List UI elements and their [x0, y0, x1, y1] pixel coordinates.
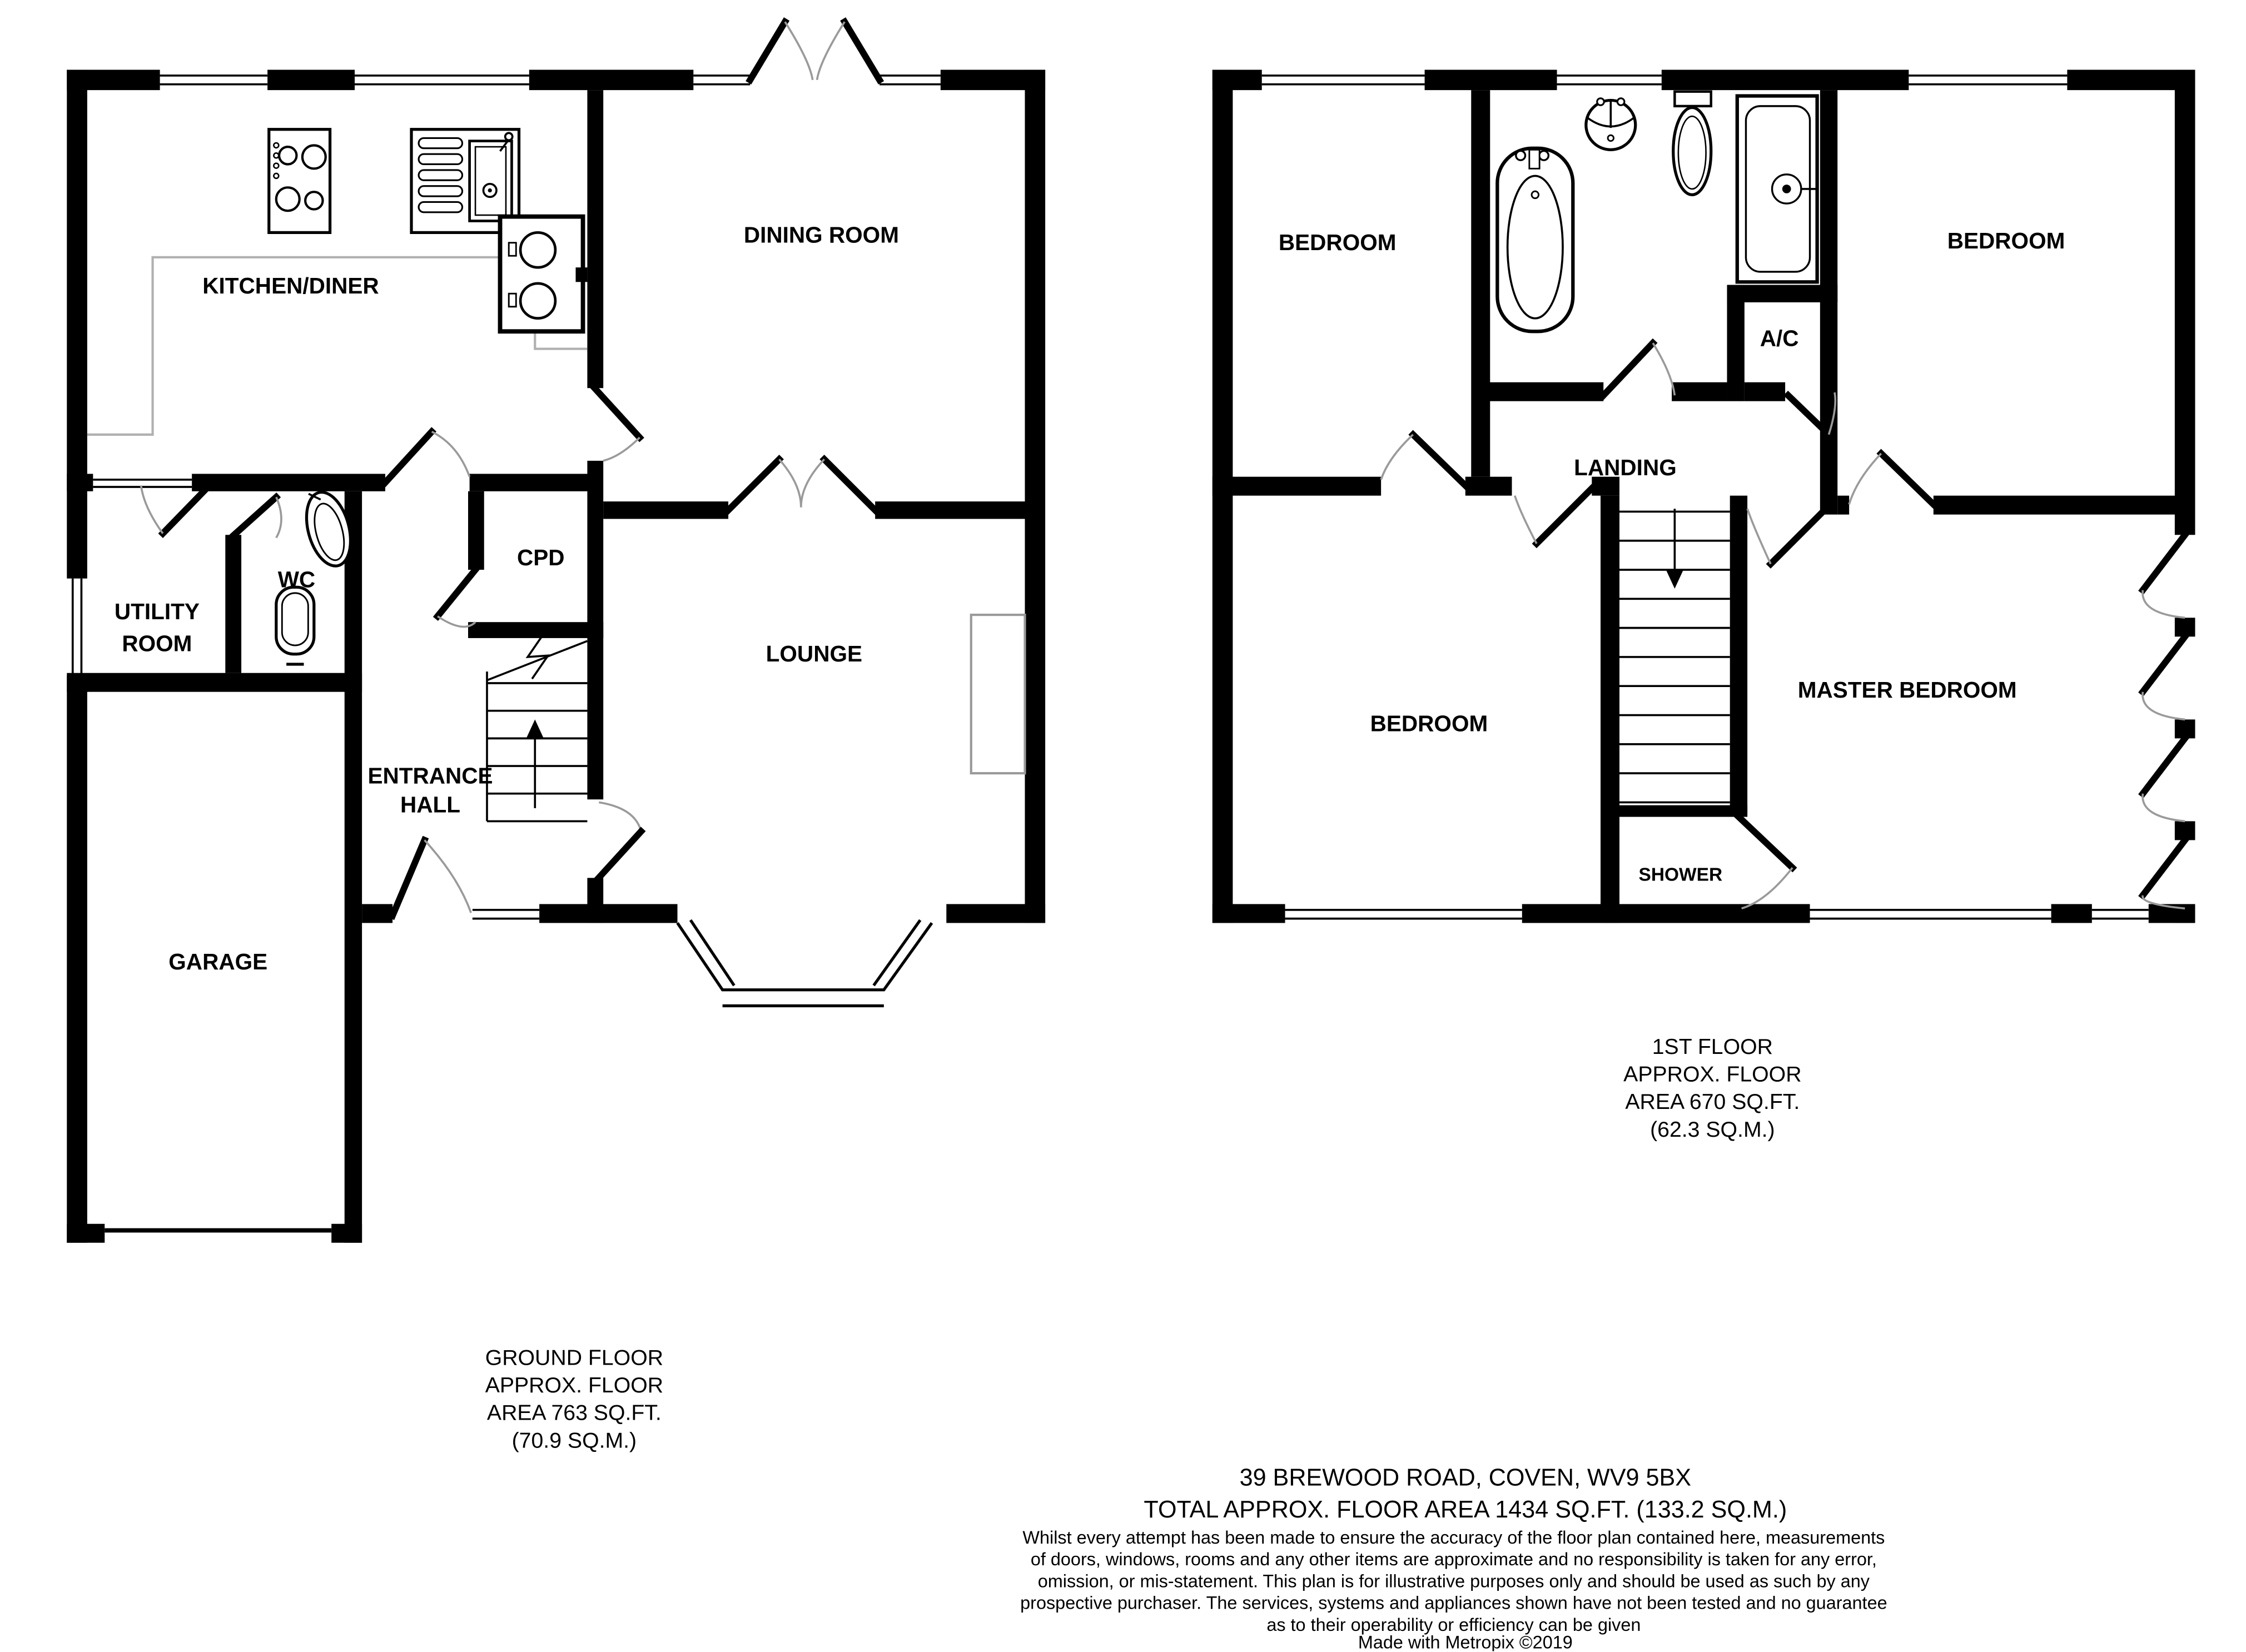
- label-dining-room: DINING ROOM: [744, 222, 899, 248]
- bath-icon: [1497, 148, 1573, 331]
- label-ac: A/C: [1760, 325, 1799, 351]
- floorplan-drawing: KITCHEN/DINER DINING ROOM CPD WC UTILITY…: [0, 0, 2246, 1651]
- total-area-line: TOTAL APPROX. FLOOR AREA 1434 SQ.FT. (13…: [1144, 1496, 1787, 1523]
- label-bedroom-bottom-left: BEDROOM: [1370, 710, 1488, 736]
- shower-tray-icon: [1737, 96, 1817, 282]
- hob-icon: [269, 130, 330, 233]
- label-master-bedroom: MASTER BEDROOM: [1798, 677, 2017, 703]
- stairs-up-icon: [487, 634, 587, 821]
- footer: 39 BREWOOD ROAD, COVEN, WV9 5BX TOTAL AP…: [1020, 1464, 1887, 1651]
- first-floor-plan: BEDROOM BEDROOM A/C LANDING BEDROOM MAST…: [1213, 70, 2195, 1142]
- ground-floor-plan: KITCHEN/DINER DINING ROOM CPD WC UTILITY…: [67, 22, 1045, 1452]
- bay-window: [678, 920, 932, 1006]
- ff-caption-2: APPROX. FLOOR: [1623, 1062, 1801, 1086]
- ground-floor-doors: [141, 388, 876, 915]
- ff-caption-1: 1ST FLOOR: [1652, 1034, 1773, 1059]
- garage-door: [105, 1228, 331, 1233]
- label-bedroom-top-left: BEDROOM: [1279, 230, 1397, 255]
- label-hall-2: HALL: [400, 792, 460, 818]
- label-garage: GARAGE: [168, 949, 267, 974]
- label-utility-2: ROOM: [122, 630, 192, 656]
- label-utility-1: UTILITY: [115, 599, 200, 624]
- french-doors: [750, 22, 879, 80]
- label-shower: SHOWER: [1639, 865, 1723, 885]
- ff-caption-3: AREA 670 SQ.FT.: [1625, 1089, 1800, 1114]
- label-cpd: CPD: [517, 545, 565, 570]
- stairs-down-icon: [1619, 509, 1730, 802]
- appliance-icon: [500, 217, 588, 332]
- disclaimer-2: of doors, windows, rooms and any other i…: [1031, 1549, 1877, 1569]
- disclaimer-3: omission, or mis-statement. This plan is…: [1038, 1571, 1870, 1591]
- label-hall-1: ENTRANCE: [367, 763, 493, 788]
- toilet-icon: [276, 587, 314, 664]
- ff-caption-4: (62.3 SQ.M.): [1650, 1117, 1775, 1142]
- bathroom-toilet-icon: [1673, 92, 1711, 195]
- disclaimer-4: prospective purchaser. The services, sys…: [1020, 1593, 1887, 1613]
- first-floor-caption: 1ST FLOOR APPROX. FLOOR AREA 670 SQ.FT. …: [1623, 1034, 1801, 1142]
- disclaimer-1: Whilst every attempt has been made to en…: [1022, 1527, 1885, 1547]
- gf-caption-4: (70.9 SQ.M.): [512, 1428, 637, 1452]
- first-floor-walls: [1213, 70, 2195, 923]
- address-line: 39 BREWOOD ROAD, COVEN, WV9 5BX: [1240, 1464, 1691, 1491]
- gf-caption-2: APPROX. FLOOR: [485, 1373, 663, 1397]
- bathroom-basin-icon: [1586, 98, 1636, 150]
- label-landing: LANDING: [1574, 455, 1677, 480]
- label-wc: WC: [278, 566, 316, 592]
- first-floor-doors: [1381, 343, 1934, 908]
- fireplace: [971, 615, 1025, 773]
- gf-caption-3: AREA 763 SQ.FT.: [487, 1401, 662, 1425]
- label-lounge: LOUNGE: [766, 641, 862, 666]
- label-kitchen-diner: KITCHEN/DINER: [202, 273, 379, 298]
- ground-floor-caption: GROUND FLOOR APPROX. FLOOR AREA 763 SQ.F…: [485, 1345, 663, 1452]
- metropix-credit: Made with Metropix ©2019: [1358, 1632, 1573, 1651]
- label-bedroom-top-right: BEDROOM: [1947, 228, 2065, 253]
- gf-caption-1: GROUND FLOOR: [485, 1345, 663, 1370]
- floorplan-page: KITCHEN/DINER DINING ROOM CPD WC UTILITY…: [0, 0, 2246, 1651]
